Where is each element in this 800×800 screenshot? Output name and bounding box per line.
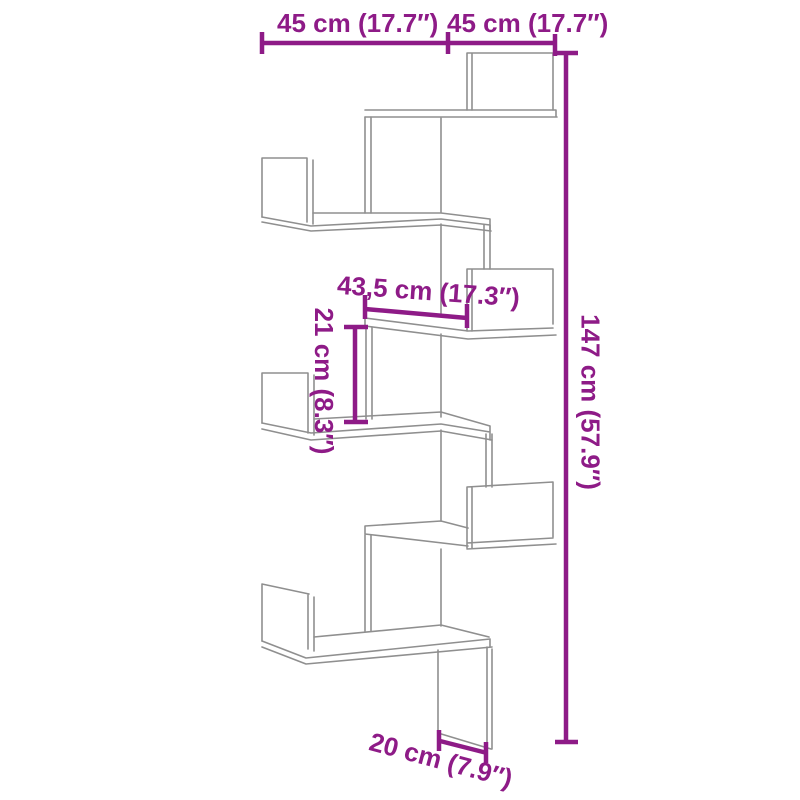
- shelf-tier1-board: [365, 110, 557, 117]
- divider-tier2-right: [484, 225, 490, 269]
- shelf-tier4-board: [262, 412, 492, 440]
- dim-label-width-right: 45 cm (17.7″): [447, 9, 607, 37]
- bottom-support-panel: [438, 647, 492, 749]
- dim-label-gap-height: 21 cm (8.3″): [310, 296, 338, 466]
- corner-shelf-line-art: [262, 53, 557, 749]
- divider-tier4-right: [486, 434, 492, 487]
- dim-line-gap-height: [344, 327, 368, 422]
- divider-tier3-left: [366, 327, 372, 419]
- shelf-tier2-board: [262, 213, 491, 231]
- shelf-tier1-right-panel: [467, 53, 553, 110]
- shelf-tier5-board: [365, 521, 468, 546]
- shelf-tier4-left-panel: [262, 373, 314, 435]
- diagram-canvas: [0, 0, 800, 800]
- shelf-tier6-board: [262, 625, 492, 664]
- product-dimension-diagram: 45 cm (17.7″) 45 cm (17.7″) 43,5 cm (17.…: [0, 0, 800, 800]
- shelf-tier2-left-panel: [262, 158, 313, 224]
- shelf-tier3-board: [365, 318, 556, 339]
- divider-tier1-left: [365, 117, 371, 213]
- divider-tier5-left: [365, 535, 371, 631]
- dim-label-width-left: 45 cm (17.7″): [277, 9, 437, 37]
- shelf-tier5-right-panel: [467, 482, 556, 549]
- shelf-tier6-left-panel: [262, 584, 314, 651]
- dim-label-total-height: 147 cm (57.9″): [577, 310, 605, 495]
